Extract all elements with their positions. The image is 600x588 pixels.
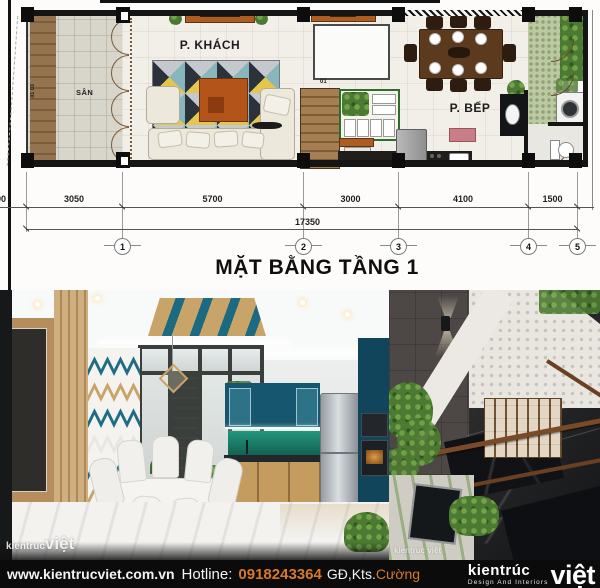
planter-greens <box>342 92 369 116</box>
footer-bar: www.kientrucviet.com.vn Hotline: 0918243… <box>0 560 600 588</box>
watermark-small: kientruc <box>6 541 45 552</box>
room-label-kitchen: P. BẾP <box>430 101 510 115</box>
plate <box>475 33 487 45</box>
wall-right <box>583 10 588 167</box>
oven-window <box>366 450 383 464</box>
column <box>569 7 582 22</box>
dim-990: 990 <box>0 194 6 204</box>
column <box>21 153 34 168</box>
floor-plan-drawing: P. KHÁCH P. BẾP SÂN 01 03 01 990 3050 57… <box>0 0 600 290</box>
wall-lamp <box>441 316 450 331</box>
plate <box>452 64 464 76</box>
folding-door-track <box>130 18 132 162</box>
decor-bowl <box>252 122 282 129</box>
grid-bubble-5: 5 <box>569 238 586 255</box>
column <box>297 153 310 168</box>
dim-3000: 3000 <box>303 194 398 204</box>
cushion <box>157 129 183 148</box>
table-tray <box>208 97 224 113</box>
plate <box>429 62 441 74</box>
grid-bubble-2: 2 <box>295 238 312 255</box>
dining-chair <box>450 15 467 28</box>
watermark-right: kientruc việt <box>394 546 441 555</box>
column-core <box>120 11 129 21</box>
page: P. KHÁCH P. BẾP SÂN 01 03 01 990 3050 57… <box>0 0 600 588</box>
stair-tag: 01 <box>320 79 327 85</box>
dining-chair <box>404 44 417 62</box>
dim-3050: 3050 <box>26 194 122 204</box>
render-kitchen-dining: kientrucviệt <box>0 290 389 560</box>
stove-burner <box>437 154 441 158</box>
dining-chair <box>474 16 491 29</box>
dining-chair <box>474 78 491 91</box>
column <box>522 153 535 168</box>
grid-bubble-3: 3 <box>390 238 407 255</box>
stove-burner <box>430 154 434 158</box>
logo-word-kientruc: kientrúc <box>468 563 549 578</box>
dim-total: 17350 <box>295 217 320 227</box>
chair-render <box>116 439 147 484</box>
planter-shelf-box <box>339 89 400 141</box>
watermark-left: kientrucviệt <box>6 534 74 554</box>
chair-render <box>152 436 179 478</box>
column-core <box>120 156 129 166</box>
low-shelf <box>339 138 374 147</box>
glass-backsplash <box>228 431 320 455</box>
countertop <box>224 455 324 462</box>
logo-left-block: kientrúc Design And Interiors <box>468 563 549 587</box>
fridge-divider <box>321 452 359 454</box>
cushion <box>241 131 265 150</box>
column <box>297 7 310 22</box>
wood-slat-panel <box>54 290 88 538</box>
platter <box>448 47 470 58</box>
column <box>569 153 582 168</box>
microwave <box>361 413 388 437</box>
room-label-yard: SÂN <box>76 88 93 97</box>
wc-wall <box>548 122 583 126</box>
kientrucviet-logo: kientrúc Design And Interiors việt <box>468 563 595 587</box>
shelf-slat <box>383 119 395 137</box>
kitchen-mat <box>449 128 476 142</box>
column <box>21 7 34 22</box>
dining-chair <box>450 79 467 92</box>
armchair <box>146 86 180 124</box>
upper-cabinets <box>225 383 320 429</box>
cushion <box>213 130 238 148</box>
sheet-border-top <box>100 0 440 3</box>
spotlight <box>35 302 40 307</box>
footer-phone: 0918243364 <box>238 566 321 583</box>
wall-tag: 01 03 <box>30 84 36 98</box>
dim-4100: 4100 <box>398 194 528 204</box>
wall-right-outer <box>592 10 593 210</box>
logo-tagline: Design And Interiors <box>468 578 549 587</box>
glass-cabinet <box>296 388 318 426</box>
dining-chair <box>426 78 443 91</box>
shelf-slat <box>357 119 369 137</box>
top-plant <box>539 290 600 314</box>
column <box>522 7 535 22</box>
render-staircase: kientruc việt <box>389 290 600 560</box>
washer-door <box>561 100 579 118</box>
wall-left-line <box>26 10 28 167</box>
led-cove <box>100 342 290 344</box>
shelf-slat <box>370 119 382 137</box>
watermark-big: việt <box>45 534 74 553</box>
dimension-line-total <box>26 229 577 230</box>
logo-word-viet: việt <box>550 564 595 587</box>
cushion <box>185 131 210 149</box>
plate <box>429 33 441 45</box>
shelf-slot <box>372 94 396 104</box>
footer-hotline-label: Hotline: <box>182 566 233 583</box>
chair-render <box>184 439 215 484</box>
spotlight <box>95 296 100 301</box>
ceiling-feature <box>148 298 266 336</box>
photo-frame-edge <box>0 290 12 560</box>
wall-oven <box>361 440 388 476</box>
footer-credit-name: Cường <box>376 566 420 582</box>
wall-tag-03: 03 <box>30 84 36 90</box>
washing-machine <box>556 92 585 124</box>
chevron-band <box>88 406 140 428</box>
chevron-band <box>88 380 140 402</box>
transom-pane <box>202 349 228 371</box>
plate <box>475 62 487 74</box>
under-cabinet-led <box>225 427 320 429</box>
coffee-table <box>199 78 248 122</box>
grid-bubble-1: 1 <box>114 238 131 255</box>
transom-pane <box>232 349 260 371</box>
dining-chair <box>426 16 443 29</box>
dim-1500: 1500 <box>528 194 577 204</box>
window-glass <box>9 328 47 492</box>
shelf-slat <box>344 119 356 137</box>
column <box>392 153 405 168</box>
column <box>392 7 405 22</box>
transom-pane <box>142 349 168 371</box>
room-label-living: P. KHÁCH <box>150 38 270 52</box>
dining-chair <box>503 44 516 62</box>
dimension-line-segments <box>0 207 594 208</box>
dim-5700: 5700 <box>122 194 303 204</box>
faucet <box>246 440 248 454</box>
footer-credit-prefix: GĐ,Kts. <box>327 566 376 582</box>
plate <box>452 31 464 43</box>
skylight-void <box>313 24 390 80</box>
spotlight <box>345 312 350 317</box>
window-hatch-top <box>392 10 528 16</box>
wall-tag-01: 01 <box>30 92 36 98</box>
glass-cabinet <box>229 388 251 426</box>
grid-bubble-4: 4 <box>520 238 537 255</box>
chevron-band <box>88 354 140 376</box>
bush <box>449 496 499 536</box>
footer-website: www.kientrucviet.com.vn <box>7 566 175 582</box>
shelf-slot <box>372 105 396 115</box>
plan-title: MẶT BẰNG TẦNG 1 <box>17 256 600 280</box>
spotlight <box>300 300 305 305</box>
